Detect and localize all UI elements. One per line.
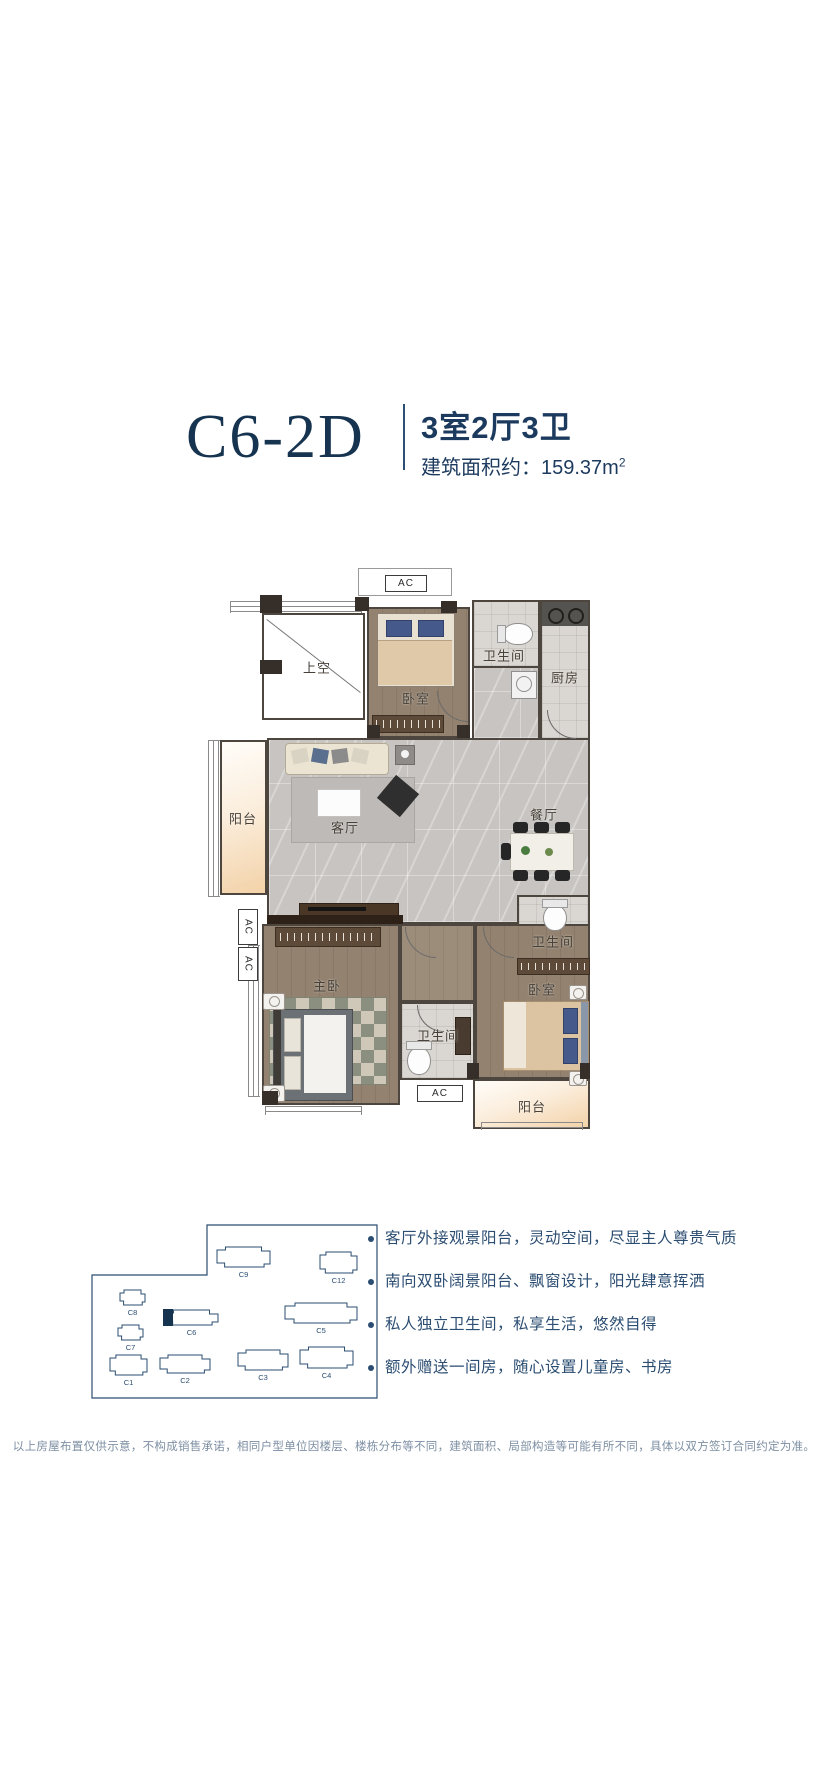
dining-chair bbox=[555, 870, 570, 881]
label-void: 上空 bbox=[303, 658, 331, 677]
highlight-unit-marker bbox=[163, 1309, 173, 1326]
wall-block bbox=[355, 597, 369, 611]
building-c3 bbox=[238, 1350, 288, 1370]
area-label: 建筑面积约： bbox=[421, 457, 541, 479]
dining-chair bbox=[534, 822, 549, 833]
label-dining: 餐厅 bbox=[530, 805, 558, 824]
plan-title: C6-2D bbox=[186, 406, 365, 468]
ceiling-lamp-icon bbox=[395, 745, 415, 765]
bed-icon-master bbox=[273, 1009, 353, 1101]
building-c4 bbox=[300, 1347, 353, 1368]
building-c2 bbox=[160, 1355, 210, 1373]
label-balcony-bottom: 阳台 bbox=[518, 1097, 546, 1116]
building-label-c8: C8 bbox=[128, 1308, 138, 1317]
area-unit: m bbox=[602, 457, 619, 479]
building-c7 bbox=[118, 1325, 143, 1340]
sofa-icon bbox=[285, 743, 389, 775]
site-plan: C9C12C8C6C5C7C1C2C3C4 bbox=[90, 1222, 380, 1402]
floor-plan: AC 上空 卧室 卫生间 厨房 客厅 餐厅 bbox=[205, 565, 590, 1140]
toilet-tank-top bbox=[497, 625, 506, 643]
wall-block bbox=[367, 725, 380, 738]
ac-unit-top: AC bbox=[385, 575, 427, 592]
window-top bbox=[230, 601, 362, 613]
wall-block bbox=[260, 595, 282, 613]
toilet-icon-right bbox=[543, 905, 567, 931]
dining-chair bbox=[555, 822, 570, 833]
tv-wall bbox=[267, 915, 403, 924]
building-label-c2: C2 bbox=[180, 1376, 190, 1385]
building-label-c3: C3 bbox=[258, 1373, 268, 1382]
room-spec: 3室2厅3卫 bbox=[421, 402, 572, 447]
building-label-c7: C7 bbox=[126, 1343, 136, 1352]
window-master-bottom bbox=[265, 1106, 362, 1115]
dining-table-icon bbox=[510, 833, 574, 871]
header-divider bbox=[403, 404, 405, 470]
building-label-c6: C6 bbox=[187, 1328, 197, 1337]
wall-block bbox=[580, 1063, 590, 1079]
area-unit-sup: 2 bbox=[619, 455, 626, 469]
building-c12 bbox=[320, 1252, 357, 1273]
wall-block bbox=[441, 601, 457, 613]
bed-icon-top bbox=[377, 613, 455, 687]
dining-chair bbox=[501, 843, 511, 860]
window-balcony-left bbox=[208, 740, 220, 897]
dining-chair bbox=[513, 822, 528, 833]
feature-list: 客厅外接观景阳台，灵动空间，尽显主人尊贵气质 南向双卧阔景阳台、飘窗设计，阳光肆… bbox=[365, 1231, 765, 1403]
building-c8 bbox=[120, 1290, 145, 1305]
label-bedroom-top: 卧室 bbox=[402, 689, 430, 708]
label-living: 客厅 bbox=[331, 818, 359, 837]
wardrobe-icon-right bbox=[517, 958, 590, 975]
building-label-c5: C5 bbox=[316, 1326, 326, 1335]
nightstand-icon bbox=[263, 993, 285, 1010]
toilet-tank-right bbox=[542, 899, 568, 908]
building-label-c9: C9 bbox=[239, 1270, 249, 1279]
label-bedroom-right: 卧室 bbox=[528, 980, 556, 999]
plant-icon bbox=[545, 848, 553, 856]
dining-chair bbox=[513, 870, 528, 881]
ac-unit-left-1: AC bbox=[238, 909, 258, 945]
building-label-c1: C1 bbox=[124, 1378, 134, 1387]
dining-chair bbox=[534, 870, 549, 881]
wardrobe-icon-top bbox=[372, 715, 444, 733]
building-c9 bbox=[217, 1247, 270, 1267]
ac-unit-left-2: AC bbox=[238, 947, 258, 981]
stove-icon bbox=[542, 602, 588, 626]
wall-block bbox=[457, 725, 470, 738]
coffee-table-icon bbox=[317, 789, 361, 817]
area-text: 建筑面积约：159.37m2 bbox=[421, 451, 626, 480]
label-bath-top: 卫生间 bbox=[483, 646, 525, 665]
label-kitchen: 厨房 bbox=[551, 668, 579, 687]
wall-block bbox=[262, 1091, 278, 1105]
building-c5 bbox=[285, 1303, 357, 1323]
nightstand-icon bbox=[569, 985, 587, 1000]
toilet-icon-bottom bbox=[407, 1047, 431, 1075]
label-master: 主卧 bbox=[313, 976, 341, 995]
toilet-icon-top bbox=[503, 623, 533, 645]
disclaimer-text: 以上房屋布置仅供示意，不构成销售承诺，相同户型单位因楼层、楼栋分布等不同，建筑面… bbox=[0, 1438, 828, 1454]
feature-item: 额外赠送一间房，随心设置儿童房、书房 bbox=[385, 1360, 765, 1376]
ac-unit-bottom: AC bbox=[417, 1085, 463, 1102]
feature-item: 私人独立卫生间，私享生活，悠然自得 bbox=[385, 1317, 765, 1333]
brochure-page: { "header": { "title": "C6-2D", "specs":… bbox=[0, 0, 828, 1792]
building-label-c4: C4 bbox=[322, 1371, 332, 1380]
label-balcony-left: 阳台 bbox=[229, 809, 257, 828]
bed-icon-right bbox=[503, 1001, 589, 1071]
plant-icon bbox=[521, 846, 530, 855]
wall-block bbox=[467, 1063, 479, 1079]
wardrobe-icon-master bbox=[275, 927, 381, 947]
site-plan-svg: C9C12C8C6C5C7C1C2C3C4 bbox=[90, 1222, 380, 1402]
feature-item: 南向双卧阔景阳台、飘窗设计，阳光肆意挥洒 bbox=[385, 1274, 765, 1290]
wall-block bbox=[260, 660, 282, 674]
feature-item: 客厅外接观景阳台，灵动空间，尽显主人尊贵气质 bbox=[385, 1231, 765, 1247]
label-bath-right: 卫生间 bbox=[532, 932, 574, 951]
washer-icon bbox=[511, 671, 537, 699]
window-balcony-bottom bbox=[481, 1122, 583, 1130]
building-label-c12: C12 bbox=[332, 1276, 346, 1285]
building-c1 bbox=[110, 1355, 147, 1375]
area-value: 159.37 bbox=[541, 457, 602, 479]
label-bath-bottom: 卫生间 bbox=[417, 1026, 459, 1045]
